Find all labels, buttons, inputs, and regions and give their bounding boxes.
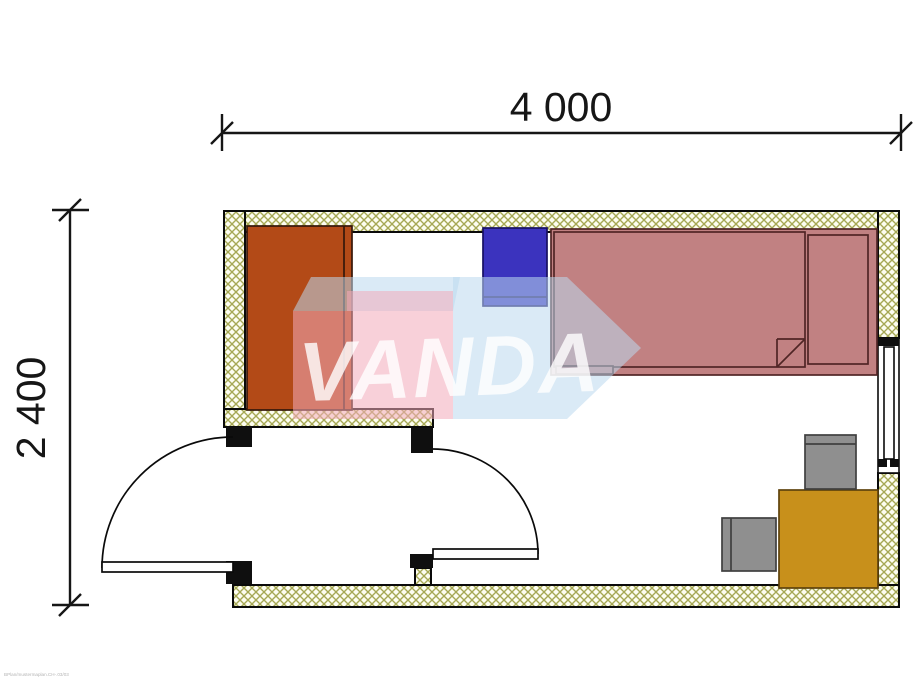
floor-plan: 4 0002 400VANDABPlan/mustermaplan.CH-.03… (0, 0, 924, 700)
entrance-door-leaf (102, 562, 233, 572)
chair (722, 518, 776, 571)
wall-right-upper (878, 211, 899, 338)
dimension-height-label: 2 400 (8, 357, 54, 460)
wall-door-post (415, 568, 431, 585)
window (878, 338, 899, 473)
watermark-text: VANDA (297, 315, 603, 419)
dimension-width-label: 4 000 (510, 84, 613, 130)
watermark-logo: VANDA (293, 277, 641, 419)
table (779, 490, 878, 588)
floor-plan-page: 4 0002 400VANDABPlan/mustermaplan.CH-.03… (0, 0, 924, 700)
door-jamb (411, 428, 433, 453)
chair (805, 435, 856, 489)
bed-pillow (808, 235, 868, 364)
wall-left (224, 211, 245, 427)
door-jamb (410, 554, 433, 568)
interior-door-leaf (433, 549, 538, 559)
footer-note: BPlan/mustermaplan.CH-.03/03 (4, 672, 69, 677)
